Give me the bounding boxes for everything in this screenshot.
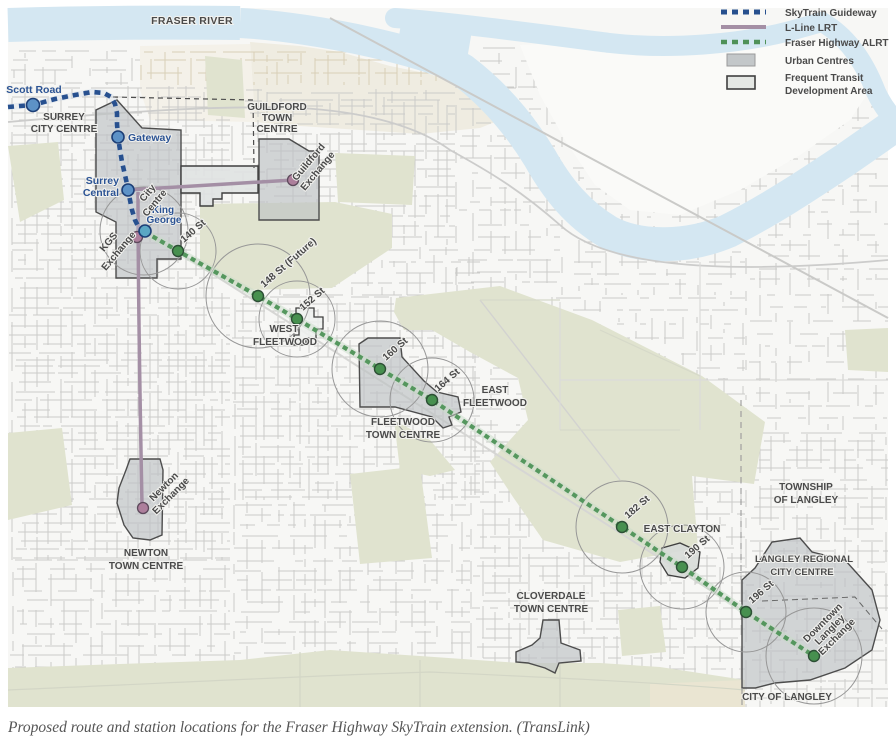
svg-text:OF LANGLEY: OF LANGLEY [774,495,839,506]
svg-text:NEWTON: NEWTON [124,548,168,559]
svg-text:EAST CLAYTON: EAST CLAYTON [644,524,721,535]
svg-text:TOWN CENTRE: TOWN CENTRE [366,430,441,441]
svg-text:FLEETWOOD: FLEETWOOD [253,337,317,348]
svg-text:Proposed route and station loc: Proposed route and station locations for… [7,719,590,736]
svg-text:CITY OF LANGLEY: CITY OF LANGLEY [742,692,832,703]
svg-text:SURREY: SURREY [43,112,85,123]
svg-text:Development Area: Development Area [785,86,873,97]
svg-text:Scott Road: Scott Road [6,84,61,96]
svg-text:Frequent Transit: Frequent Transit [785,73,864,84]
svg-text:L-Line LRT: L-Line LRT [785,23,837,34]
svg-text:TOWNSHIP: TOWNSHIP [779,482,833,493]
svg-text:WEST: WEST [270,324,299,335]
svg-text:Surrey: Surrey [86,175,119,187]
svg-text:SkyTrain Guideway: SkyTrain Guideway [785,8,877,19]
svg-text:Fraser Highway ALRT: Fraser Highway ALRT [785,38,889,49]
svg-text:GUILDFORD: GUILDFORD [247,102,306,113]
svg-text:Gateway: Gateway [128,132,171,144]
svg-text:TOWN: TOWN [262,113,292,124]
svg-text:EAST: EAST [482,385,509,396]
svg-text:Urban Centres: Urban Centres [785,56,854,67]
svg-text:TOWN CENTRE: TOWN CENTRE [514,604,589,615]
svg-text:FLEETWOOD: FLEETWOOD [463,398,527,409]
svg-text:CLOVERDALE: CLOVERDALE [517,591,586,602]
svg-text:TOWN CENTRE: TOWN CENTRE [109,561,184,572]
svg-text:LANGLEY REGIONAL: LANGLEY REGIONAL [755,554,853,565]
svg-text:CITY CENTRE: CITY CENTRE [31,124,98,135]
svg-text:George: George [146,215,181,226]
svg-text:CENTRE: CENTRE [256,124,297,135]
svg-text:Central: Central [83,187,119,199]
svg-text:CITY CENTRE: CITY CENTRE [770,567,833,578]
svg-text:FRASER RIVER: FRASER RIVER [151,15,233,27]
svg-text:FLEETWOOD: FLEETWOOD [371,417,435,428]
